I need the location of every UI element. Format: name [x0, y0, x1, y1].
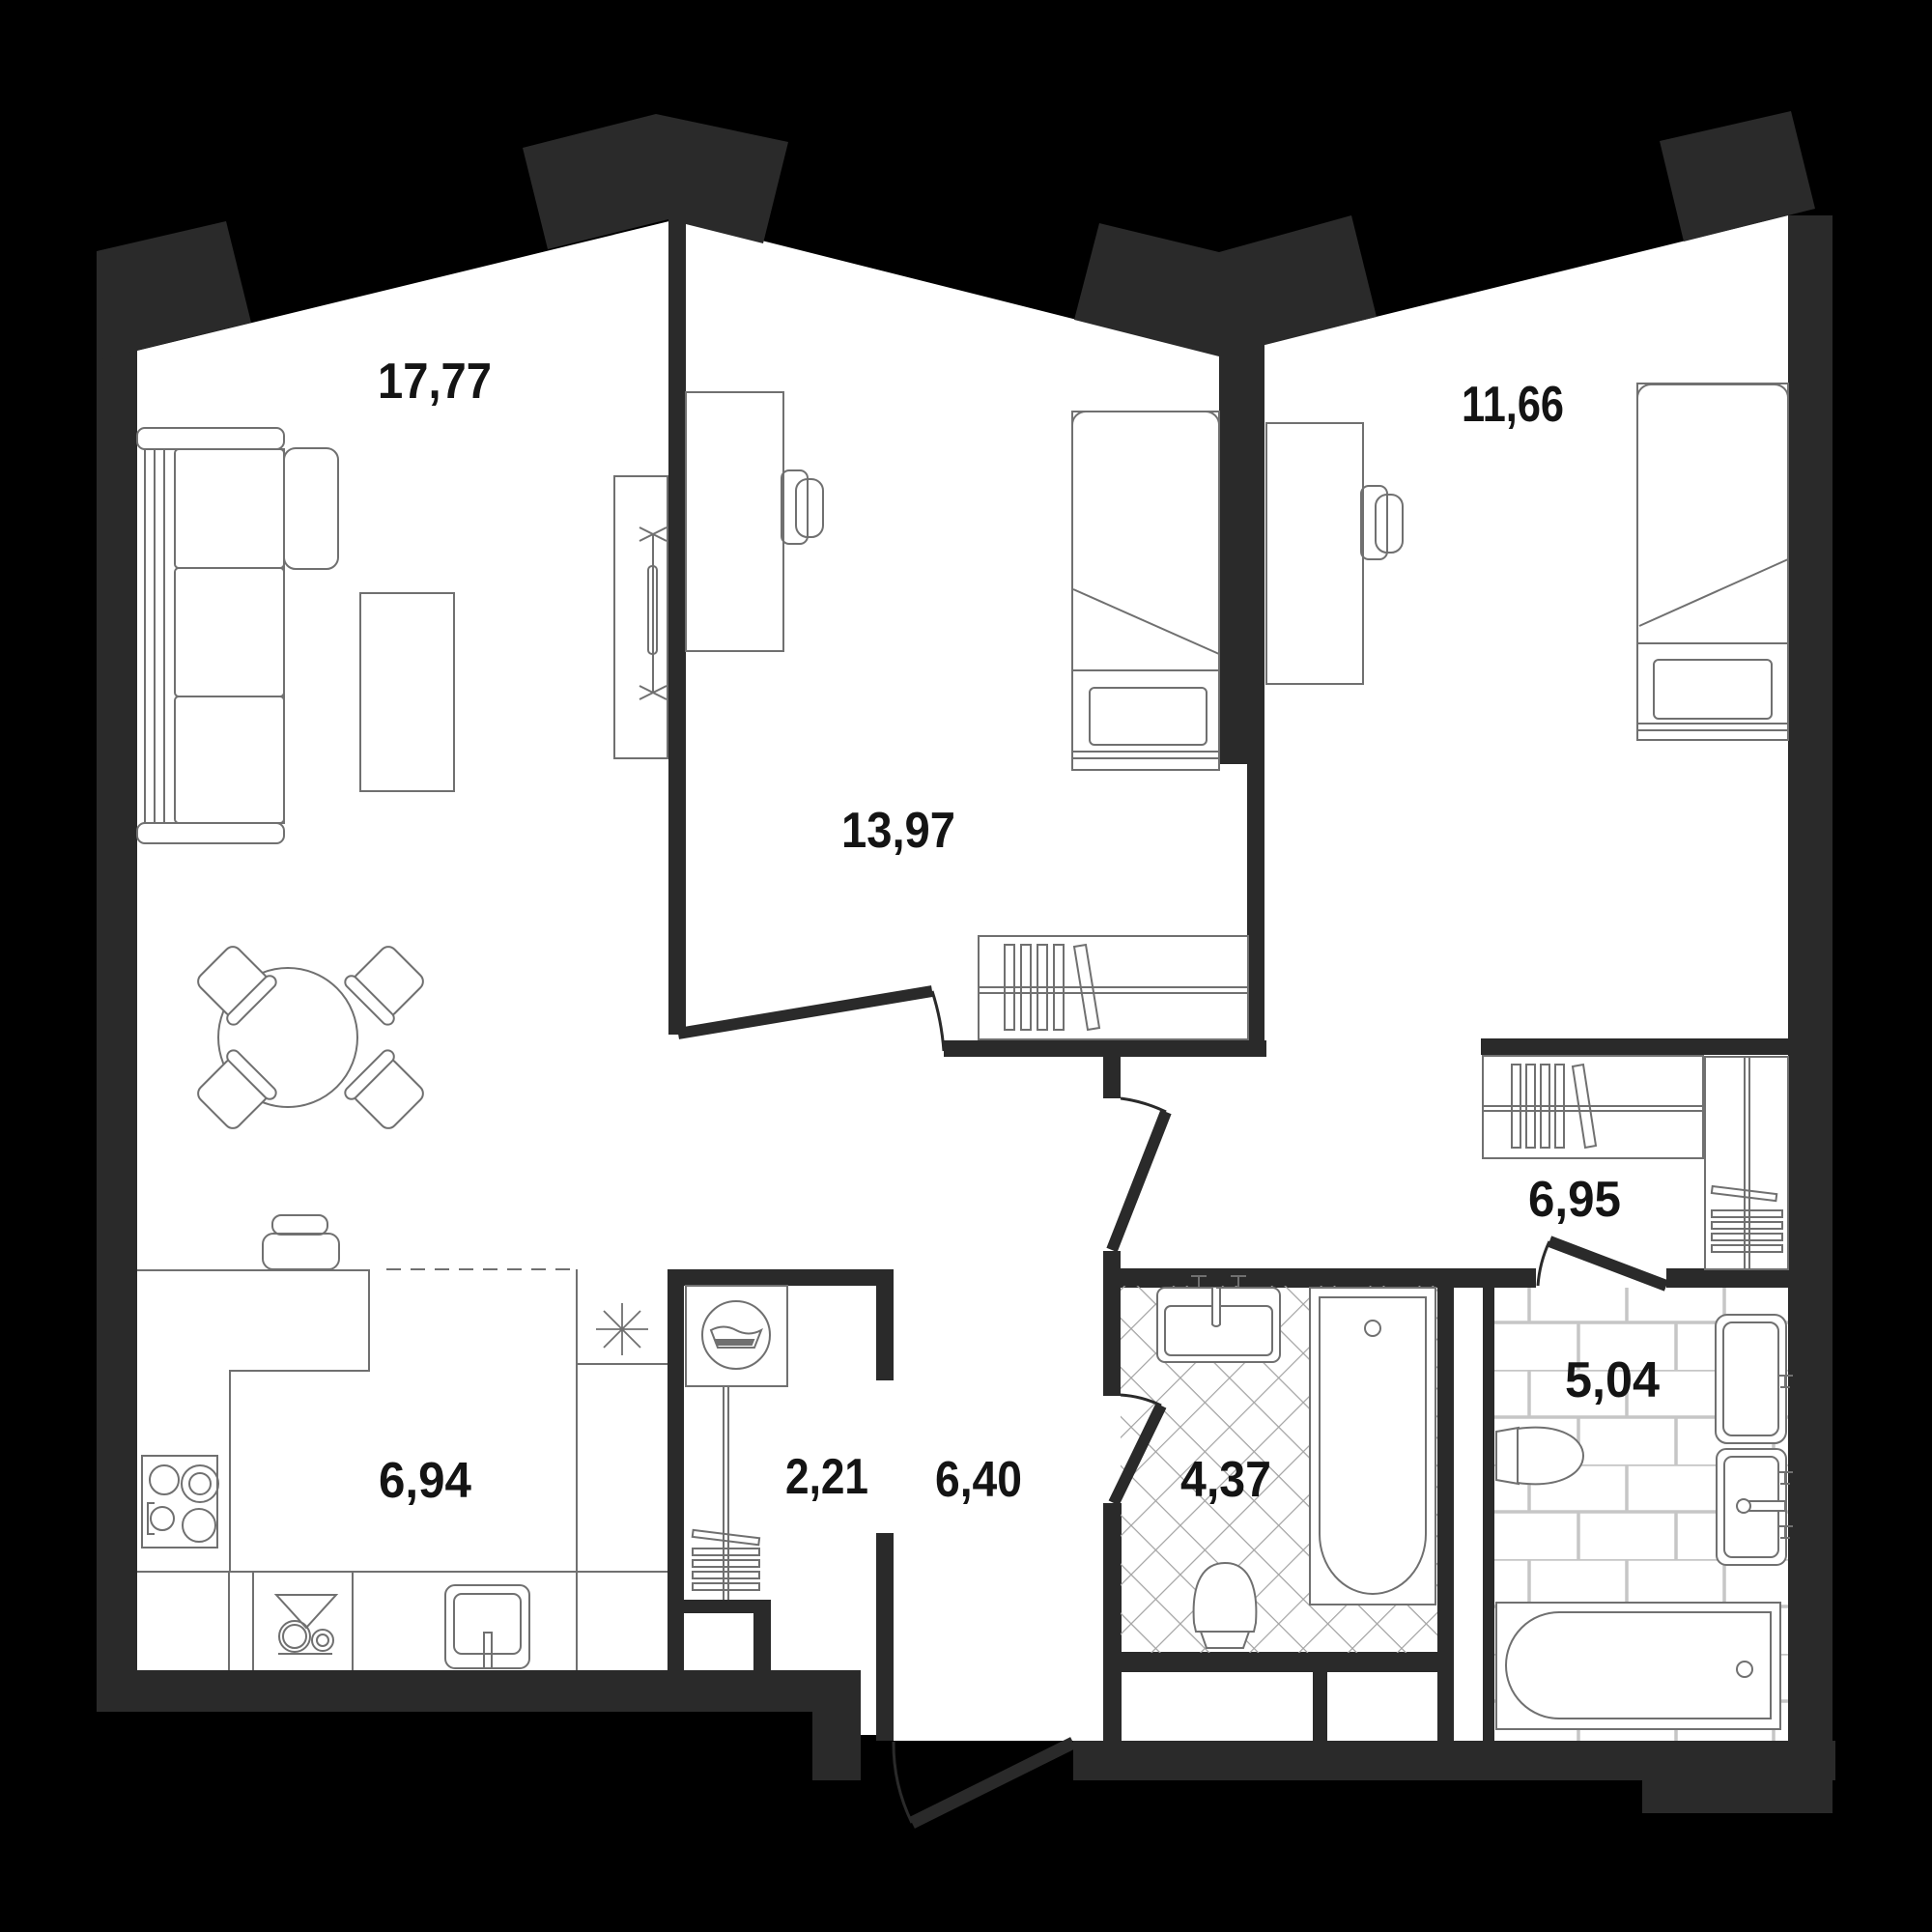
svg-text:4,37: 4,37	[1180, 1452, 1271, 1508]
svg-text:6,94: 6,94	[379, 1453, 471, 1509]
svg-text:6,40: 6,40	[935, 1452, 1022, 1508]
svg-text:11,66: 11,66	[1462, 377, 1564, 433]
svg-text:13,97: 13,97	[841, 803, 955, 859]
svg-text:6,95: 6,95	[1528, 1172, 1621, 1228]
svg-text:5,04: 5,04	[1565, 1352, 1660, 1408]
svg-text:17,77: 17,77	[378, 354, 492, 410]
svg-text:2,21: 2,21	[785, 1449, 868, 1505]
